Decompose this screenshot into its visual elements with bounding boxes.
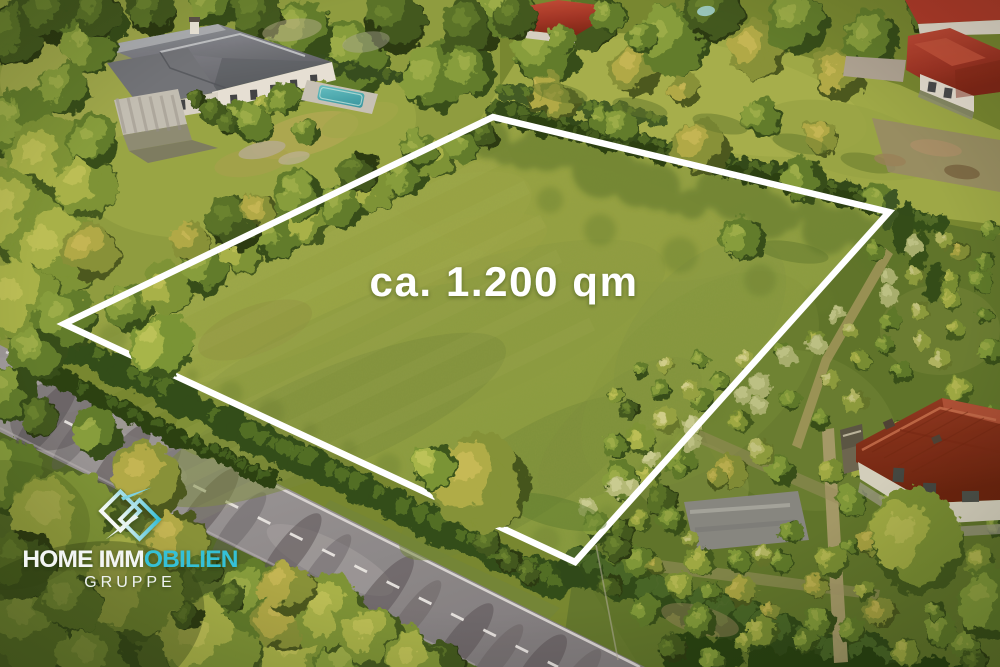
svg-text:HOME IMMOBILIEN: HOME IMMOBILIEN bbox=[22, 546, 237, 573]
svg-text:GRUPPE: GRUPPE bbox=[84, 574, 176, 591]
svg-text:ca. 1.200 qm: ca. 1.200 qm bbox=[369, 258, 638, 305]
